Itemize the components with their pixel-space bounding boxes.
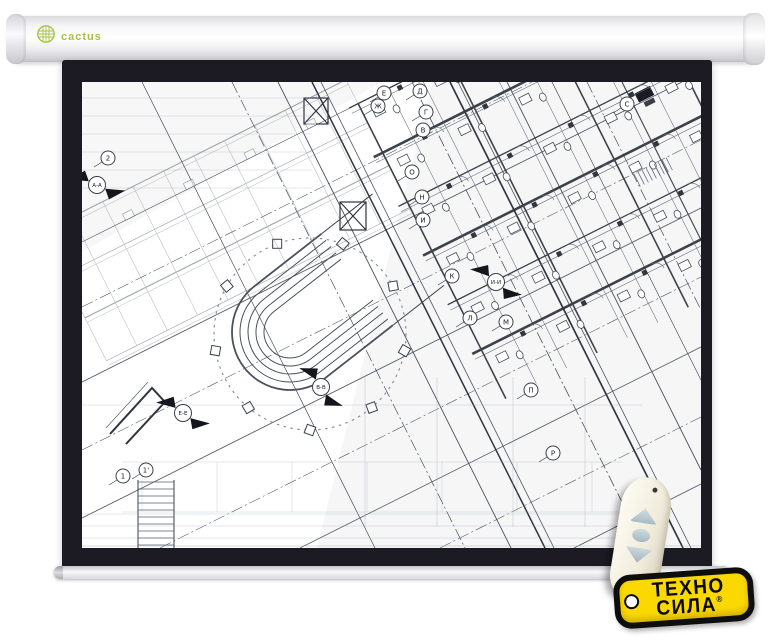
svg-text:С: С (625, 101, 630, 109)
svg-text:Е-Е: Е-Е (179, 411, 188, 417)
remote-down-button (623, 546, 653, 565)
svg-text:А-А: А-А (92, 183, 102, 189)
cactus-brand-text: cactus (61, 31, 102, 43)
svg-text:И: И (420, 217, 425, 225)
screen-frame: ЕЖДГВОНИКЛМПРС211' А-АЕ-ЕВ-ВИ-И (62, 60, 712, 568)
cactus-brand-logo: cactus (36, 24, 102, 49)
screen-casing: cactus (8, 16, 762, 62)
svg-text:Р: Р (551, 450, 555, 458)
screen-surface: ЕЖДГВОНИКЛМПРС211' А-АЕ-ЕВ-ВИ-И (82, 82, 701, 548)
remote-stop-button (631, 528, 651, 544)
registered-mark: ® (716, 594, 723, 604)
svg-text:Ж: Ж (374, 103, 382, 111)
svg-text:И-И: И-И (491, 280, 501, 286)
svg-text:О: О (409, 169, 415, 177)
svg-text:1': 1' (143, 467, 149, 475)
svg-text:К: К (450, 273, 455, 281)
svg-text:П: П (528, 387, 533, 395)
svg-text:Н: Н (419, 194, 424, 202)
tag-hole (624, 594, 640, 610)
technosila-logo: ТЕХНО СИЛА® (612, 566, 755, 630)
svg-text:Г: Г (424, 109, 428, 117)
svg-text:М: М (503, 319, 509, 327)
svg-text:1: 1 (121, 473, 125, 481)
technosila-logo-text: ТЕХНО СИЛА® (641, 576, 726, 619)
svg-text:Л: Л (467, 315, 472, 323)
remote-led-indicator (652, 487, 658, 493)
svg-text:Д: Д (417, 88, 423, 96)
remote-up-button (629, 506, 659, 525)
cactus-globe-icon (36, 24, 56, 49)
svg-text:В-В: В-В (316, 385, 326, 391)
casing-end-cap-left (6, 14, 26, 64)
casing-end-cap-right (743, 13, 765, 65)
svg-text:Е: Е (382, 90, 386, 98)
svg-text:В: В (421, 127, 426, 135)
blueprint-drawing: ЕЖДГВОНИКЛМПРС211' А-АЕ-ЕВ-ВИ-И (82, 82, 701, 548)
projection-screen-product-photo: cactus (0, 0, 784, 640)
svg-text:2: 2 (106, 155, 110, 163)
